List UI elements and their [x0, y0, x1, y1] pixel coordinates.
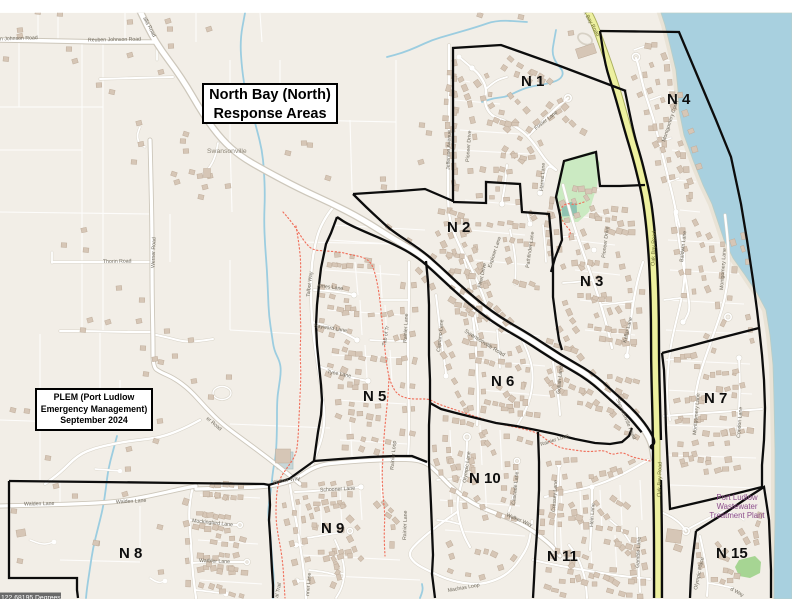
svg-text:Werner Road: Werner Road	[151, 237, 158, 268]
svg-text:Rainier Lane: Rainier Lane	[402, 510, 409, 540]
svg-text:Treatment Plant: Treatment Plant	[709, 511, 765, 520]
svg-text:Walden Lane: Walden Lane	[24, 501, 55, 508]
svg-text:N 6: N 6	[491, 373, 514, 390]
svg-text:N 15: N 15	[716, 545, 748, 562]
svg-text:N 3: N 3	[580, 273, 603, 290]
svg-text:N 2: N 2	[447, 219, 470, 236]
svg-text:N 4: N 4	[667, 91, 691, 108]
svg-text:Oak Bay Road: Oak Bay Road	[651, 231, 658, 266]
svg-text:Wastewater: Wastewater	[717, 502, 758, 511]
svg-text:N 10: N 10	[469, 470, 501, 487]
svg-text:N 7: N 7	[704, 390, 727, 407]
svg-text:Swansonville: Swansonville	[207, 148, 247, 155]
svg-text:Port Ludlow: Port Ludlow	[716, 493, 758, 502]
svg-text:N 1: N 1	[521, 73, 544, 90]
svg-text:Thorin Road: Thorin Road	[103, 259, 132, 265]
svg-text:N 9: N 9	[321, 520, 344, 537]
svg-text:N 8: N 8	[119, 545, 142, 562]
svg-text:Warbler Lane: Warbler Lane	[199, 558, 230, 565]
svg-text:N 11: N 11	[547, 548, 578, 565]
svg-text:N 5: N 5	[363, 388, 386, 405]
svg-text:Reuben Johnson Road: Reuben Johnson Road	[88, 37, 141, 44]
svg-text:Oak Bay Road: Oak Bay Road	[657, 462, 664, 497]
